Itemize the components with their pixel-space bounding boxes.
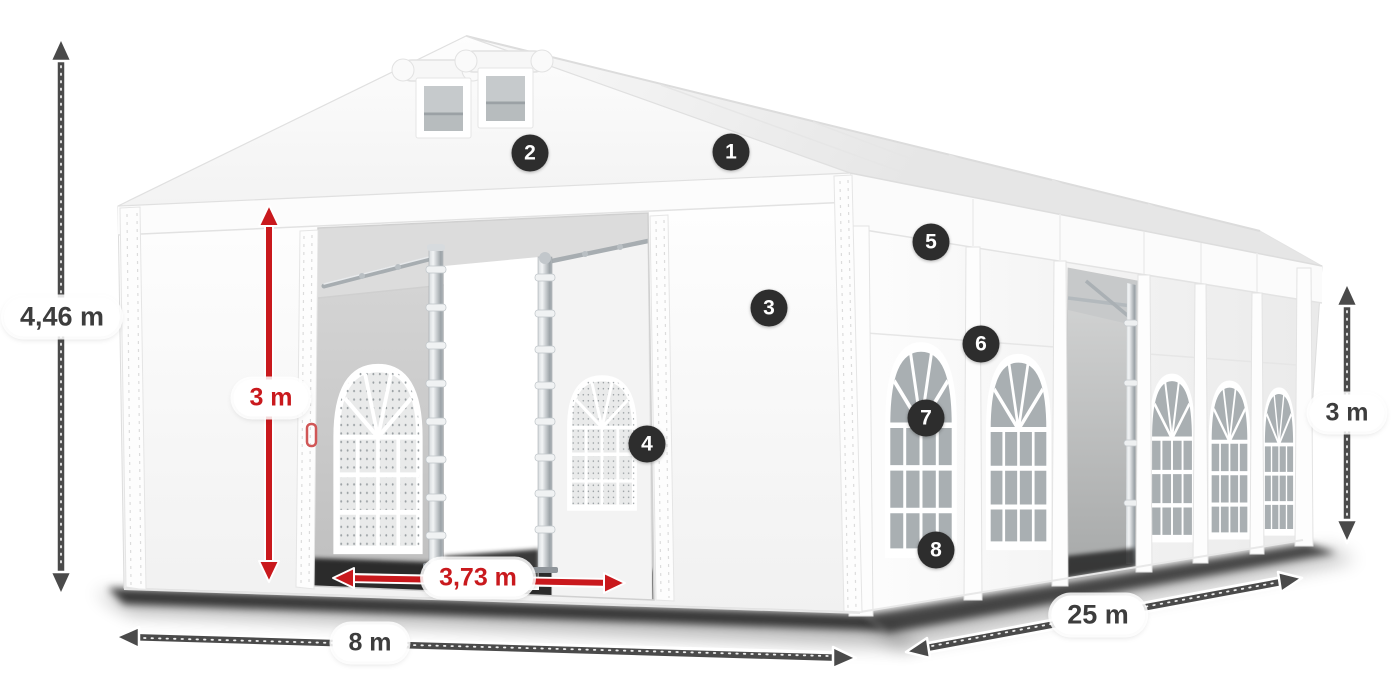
marker-badge-4: 4 <box>629 426 666 463</box>
tent-illustration <box>0 0 1400 700</box>
dimension-label-total-height: 4,46 m <box>4 298 120 337</box>
side-window-1 <box>888 347 955 553</box>
tent-dimension-diagram: 4,46 m 3 m 3,73 m 8 m 25 m 3 m 1 2 3 4 5… <box>0 0 1400 700</box>
entrance-interior <box>300 200 670 610</box>
entrance-open-gap <box>444 257 539 590</box>
side-window-5 <box>1264 391 1295 533</box>
dimension-label-wall-height: 3 m <box>1309 395 1384 432</box>
interior-window <box>337 368 420 550</box>
dimension-label-side-length: 25 m <box>1051 596 1145 635</box>
marker-badge-8: 8 <box>918 532 955 569</box>
side-window-2 <box>988 358 1048 546</box>
side-door-opening <box>1064 268 1138 578</box>
dimension-label-front-width: 8 m <box>332 625 407 662</box>
dimension-label-entrance-width: 3,73 m <box>423 560 533 597</box>
sliding-door-window <box>570 378 635 507</box>
marker-badge-5: 5 <box>913 224 950 261</box>
marker-badge-6: 6 <box>963 326 1000 363</box>
side-window-4 <box>1210 384 1249 536</box>
side-window-3 <box>1150 377 1193 538</box>
marker-badge-1: 1 <box>713 134 750 171</box>
marker-badge-2: 2 <box>512 135 549 172</box>
dimension-label-entrance-height: 3 m <box>233 380 308 417</box>
marker-badge-3: 3 <box>751 290 788 327</box>
marker-badge-7: 7 <box>908 400 945 437</box>
